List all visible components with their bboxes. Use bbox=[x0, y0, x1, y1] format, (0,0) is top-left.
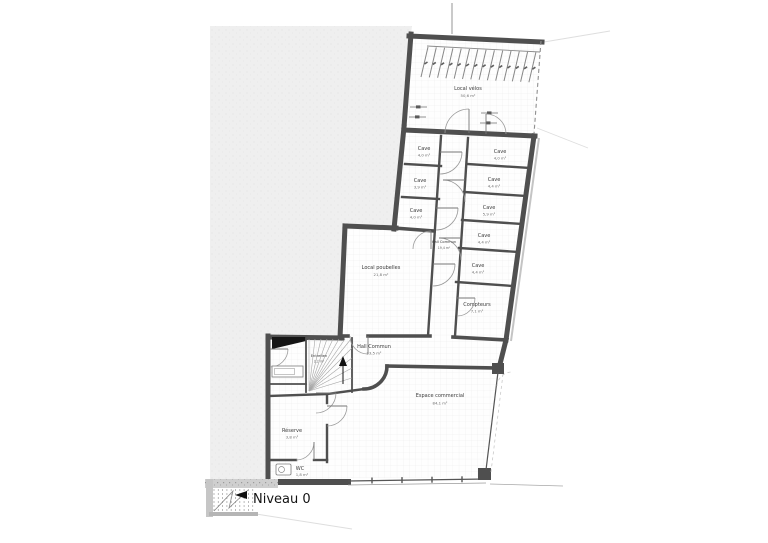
room-label-cave-l2: Cave 3,9 m² bbox=[414, 178, 427, 190]
parcel-line-right bbox=[537, 128, 588, 148]
svg-text:Cave: Cave bbox=[483, 205, 496, 211]
svg-text:84,1 m²: 84,1 m² bbox=[433, 401, 448, 406]
room-label-cave-l1: Cave 4,0 m² bbox=[418, 146, 431, 158]
svg-text:1,8 m²: 1,8 m² bbox=[296, 472, 309, 477]
svg-text:4,0 m²: 4,0 m² bbox=[418, 153, 431, 158]
entry-canopy-arc bbox=[497, 372, 511, 386]
storefront-glazing bbox=[348, 479, 486, 481]
floor-plan-drawing: Local vélos 50,6 m² Cave 4,0 m² Cave 3,9… bbox=[0, 0, 768, 543]
level-label-text: Niveau 0 bbox=[253, 492, 311, 507]
leader-line bbox=[256, 514, 352, 529]
svg-text:Cave: Cave bbox=[488, 177, 501, 183]
svg-text:5,9 m²: 5,9 m² bbox=[483, 212, 496, 217]
wall-poubelles-top bbox=[345, 226, 396, 228]
section-base-bar bbox=[209, 512, 258, 516]
svg-text:21,8 m²: 21,8 m² bbox=[374, 272, 389, 277]
svg-text:Cave: Cave bbox=[414, 178, 427, 184]
sidewalk-hatch bbox=[205, 479, 278, 488]
svg-text:4,4 m²: 4,4 m² bbox=[478, 240, 491, 245]
room-label-cave-r3: Cave 5,9 m² bbox=[483, 205, 496, 217]
level-marker-arrow-icon bbox=[235, 491, 247, 499]
wall-espace-top bbox=[387, 366, 498, 368]
svg-text:3,8 m²: 3,8 m² bbox=[286, 435, 299, 440]
svg-text:Compteurs: Compteurs bbox=[463, 302, 491, 308]
svg-text:Cave: Cave bbox=[478, 233, 491, 239]
section-stub bbox=[206, 479, 213, 517]
svg-text:Espace commercial: Espace commercial bbox=[416, 393, 465, 399]
room-label-cave-r2: Cave 4,4 m² bbox=[488, 177, 501, 189]
parcel-line-top bbox=[544, 31, 610, 42]
street-line bbox=[490, 484, 563, 486]
svg-text:4,0 m²: 4,0 m² bbox=[410, 215, 423, 220]
level-label: Niveau 0 bbox=[235, 491, 311, 507]
svg-text:Hall Commun: Hall Commun bbox=[357, 344, 391, 350]
svg-text:Entretien: Entretien bbox=[311, 354, 327, 358]
svg-text:Cave: Cave bbox=[418, 146, 431, 152]
svg-text:23,5 m²: 23,5 m² bbox=[367, 351, 382, 356]
svg-text:2,2 m²: 2,2 m² bbox=[314, 360, 325, 364]
svg-text:Cave: Cave bbox=[472, 263, 485, 269]
room-label-cave-r4: Cave 4,4 m² bbox=[478, 233, 491, 245]
floor-plan-viewport: Local vélos 50,6 m² Cave 4,0 m² Cave 3,9… bbox=[0, 0, 768, 543]
svg-text:Réserve: Réserve bbox=[282, 427, 302, 434]
svg-text:3,9 m²: 3,9 m² bbox=[414, 185, 427, 190]
corner-post-bottom bbox=[478, 468, 491, 480]
svg-text:4,0 m²: 4,0 m² bbox=[494, 156, 507, 161]
utility-fixture bbox=[272, 366, 303, 377]
storefront-sill bbox=[348, 483, 486, 485]
svg-text:50,6 m²: 50,6 m² bbox=[461, 93, 476, 98]
svg-text:4,4 m²: 4,4 m² bbox=[488, 184, 501, 189]
svg-text:Local vélos: Local vélos bbox=[454, 85, 482, 92]
svg-text:Local poubelles: Local poubelles bbox=[362, 265, 401, 271]
svg-text:7,1 m²: 7,1 m² bbox=[471, 309, 484, 314]
svg-text:19,4 m²: 19,4 m² bbox=[438, 246, 451, 250]
room-label-cave-r1: Cave 4,0 m² bbox=[494, 149, 507, 161]
svg-text:Hall Commun: Hall Commun bbox=[432, 240, 456, 244]
room-label-cave-l3: Cave 4,0 m² bbox=[410, 208, 423, 220]
svg-text:Cave: Cave bbox=[494, 149, 507, 155]
svg-text:4,4 m²: 4,4 m² bbox=[472, 270, 485, 275]
room-label-cave-r5: Cave 4,4 m² bbox=[472, 263, 485, 275]
svg-text:Cave: Cave bbox=[410, 208, 423, 214]
